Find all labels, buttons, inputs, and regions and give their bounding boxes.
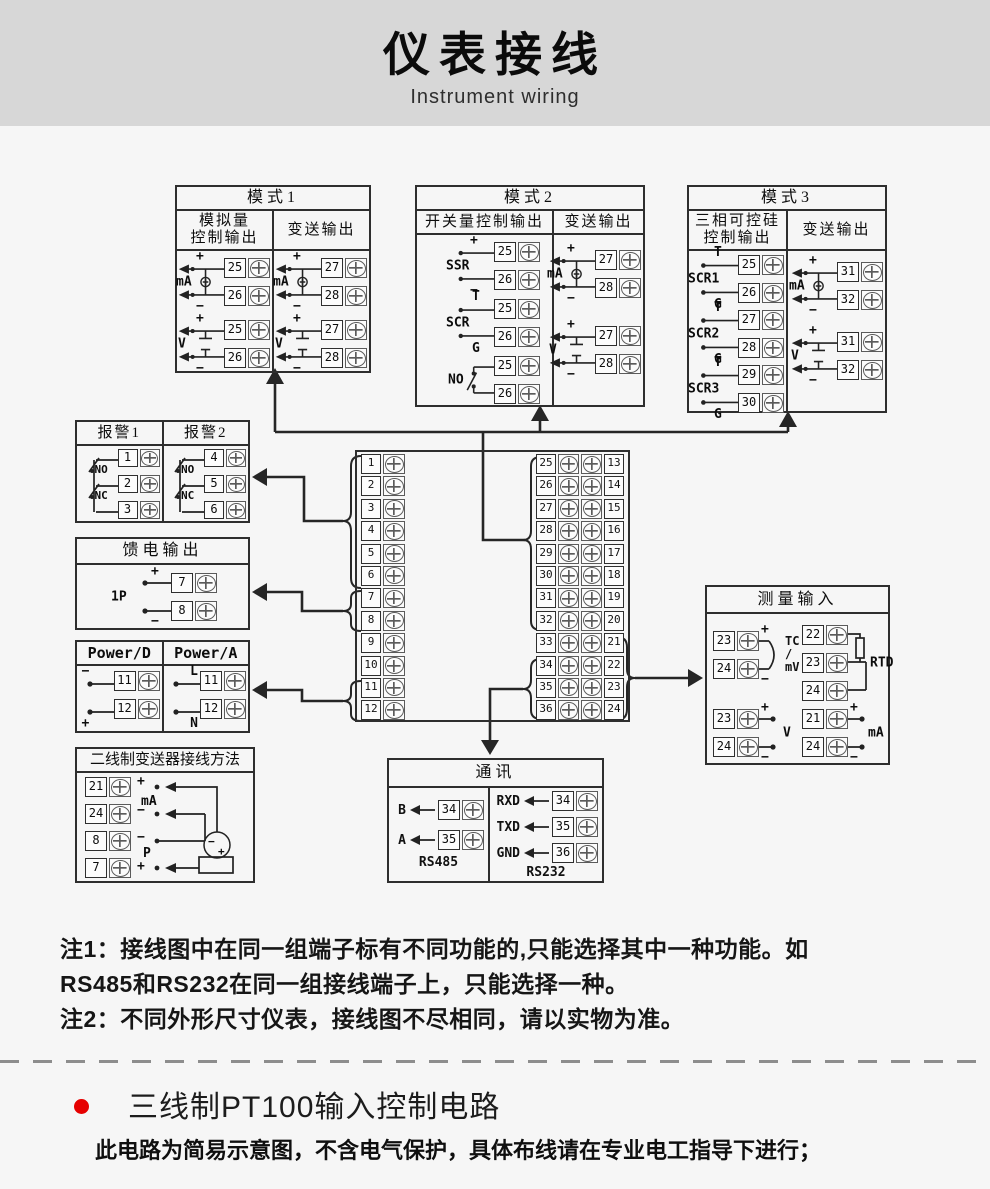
terminal-screw-icon xyxy=(826,681,848,701)
terminal-screw-icon xyxy=(737,737,759,757)
terminal-row: 6 xyxy=(361,566,405,586)
terminal: 6 xyxy=(204,501,246,519)
terminal: 34 xyxy=(552,791,598,811)
terminal: 25 xyxy=(494,299,540,319)
mode3-box: 模式3 三相可控硅控制输出 T xyxy=(687,185,887,413)
terminal-screw-icon xyxy=(383,678,405,698)
terminal: 12 xyxy=(114,699,160,719)
comm-signal-row: TXD 35 xyxy=(490,817,598,837)
terminal-screw-icon xyxy=(383,611,405,631)
transmitter-minus: − xyxy=(208,836,215,848)
terminal-screw-icon xyxy=(762,338,784,358)
terminal-screw-icon xyxy=(195,573,217,593)
feed-output-box: 馈电输出 + − 1P 7 8 xyxy=(75,537,250,630)
mode2-relay-no-group: NO 25 26 xyxy=(446,353,540,407)
terminal: 32 xyxy=(837,360,883,380)
two-wire-title: 二线制变送器接线方法 xyxy=(77,749,253,773)
terminal-screw-icon xyxy=(140,475,160,493)
terminal: 23 xyxy=(713,631,759,651)
central-left-column: 1 2 3 4 5 6 xyxy=(361,454,405,720)
terminal-screw-icon xyxy=(345,320,367,340)
terminal: 35 xyxy=(438,830,484,850)
v-input-group: 23 24 + − V xyxy=(713,706,801,760)
terminal-screw-icon xyxy=(558,588,579,608)
mode2-switch-column: 开关量控制输出 + − SSR 25 xyxy=(417,211,552,405)
terminal-screw-icon xyxy=(576,791,598,811)
terminal-screw-icon xyxy=(576,817,598,837)
terminal-screw-icon xyxy=(737,659,759,679)
terminal-screw-icon xyxy=(861,290,883,310)
mode3-scr-column: 三相可控硅控制输出 T G xyxy=(689,211,786,411)
terminal-row: 2513 xyxy=(536,454,624,474)
arrow-left-icon xyxy=(409,800,435,820)
terminal-screw-icon xyxy=(224,671,246,691)
terminal: 26 xyxy=(224,348,270,368)
measurement-input-title: 测量输入 xyxy=(707,587,888,614)
terminal-screw-icon xyxy=(558,499,579,519)
terminal: 31 xyxy=(837,262,883,282)
terminal-row: 2917 xyxy=(536,544,624,564)
terminal-screw-icon xyxy=(581,678,602,698)
terminal-row: 12 xyxy=(361,700,405,720)
dashed-divider xyxy=(0,1060,990,1063)
mode1-col1-header: 模拟量控制输出 xyxy=(177,211,272,251)
tc-mv-input-group: 23 24 + − TC / mV xyxy=(713,628,811,682)
terminal-row: 3422 xyxy=(536,656,624,676)
terminal-row: 2 xyxy=(361,476,405,496)
terminal-screw-icon xyxy=(826,709,848,729)
terminal: 24 xyxy=(802,737,848,757)
mode1-analog-column: 模拟量控制输出 + − mA xyxy=(177,211,272,371)
terminal-screw-icon xyxy=(109,831,131,851)
terminal-screw-icon xyxy=(581,454,602,474)
terminal-screw-icon xyxy=(762,393,784,413)
alarm1-title: 报警1 xyxy=(97,425,141,442)
terminal: 31 xyxy=(837,332,883,352)
communication-box: 通讯 B 34 A xyxy=(387,758,604,883)
terminal-row: 3220 xyxy=(536,611,624,631)
terminal-screw-icon xyxy=(619,326,641,346)
terminal-screw-icon xyxy=(581,588,602,608)
power-d-title: Power/D xyxy=(88,645,151,662)
terminal: 29 xyxy=(738,365,784,385)
rtd-input-group: 22 23 24 RTD xyxy=(802,622,892,704)
terminal-screw-icon xyxy=(226,501,246,519)
terminal: 4 xyxy=(204,449,246,467)
terminal: 27 xyxy=(595,250,641,270)
terminal-screw-icon xyxy=(383,588,405,608)
terminal-row: 2614 xyxy=(536,476,624,496)
terminal-screw-icon xyxy=(248,348,270,368)
terminal-screw-icon xyxy=(558,656,579,676)
terminal-screw-icon xyxy=(762,283,784,303)
terminal: 8 xyxy=(85,831,131,851)
terminal: 34 xyxy=(438,800,484,820)
terminal-screw-icon xyxy=(518,270,540,290)
terminal-screw-icon xyxy=(383,476,405,496)
terminal-screw-icon xyxy=(558,476,579,496)
terminal: 11 xyxy=(114,671,160,691)
terminal-row: 3321 xyxy=(536,633,624,653)
terminal: 7 xyxy=(171,573,217,593)
terminal-screw-icon xyxy=(558,566,579,586)
terminal-screw-icon xyxy=(581,499,602,519)
mode1-title: 模式1 xyxy=(177,187,369,211)
terminal-screw-icon xyxy=(558,633,579,653)
terminal-screw-icon xyxy=(383,499,405,519)
tc-mv-label: TC / mV xyxy=(785,635,799,674)
terminal: 26 xyxy=(494,384,540,404)
terminal-row: 4 xyxy=(361,521,405,541)
mode1-col2-header: 变送输出 xyxy=(287,222,355,239)
terminal-screw-icon xyxy=(558,700,579,720)
terminal-screw-icon xyxy=(383,521,405,541)
arrow-left-icon xyxy=(523,843,549,863)
terminal-screw-icon xyxy=(345,258,367,278)
terminal-screw-icon xyxy=(195,601,217,621)
rtd-resistor-icon xyxy=(848,622,870,704)
mode1-box: 模式1 模拟量控制输出 + xyxy=(175,185,371,373)
terminal: 7 xyxy=(85,858,131,878)
terminal-screw-icon xyxy=(109,858,131,878)
note-line-2: RS485和RS232在同一组接线端子上，只能选择一种。 xyxy=(60,967,950,1002)
terminal-screw-icon xyxy=(383,656,405,676)
terminal-row: 9 xyxy=(361,633,405,653)
terminal-screw-icon xyxy=(826,653,848,673)
terminal-screw-icon xyxy=(581,544,602,564)
terminal-screw-icon xyxy=(737,709,759,729)
terminal-screw-icon xyxy=(558,544,579,564)
terminal: 23 xyxy=(802,653,848,673)
terminal-screw-icon xyxy=(558,454,579,474)
rs485-label: RS485 xyxy=(389,855,488,870)
mode1-v-output-group: + − V 25 26 xyxy=(176,317,270,371)
mode1-ma-output-group: + − mA 25 26 xyxy=(176,255,270,309)
terminal-screw-icon xyxy=(762,310,784,330)
rs232-label: RS232 xyxy=(490,865,602,880)
mode2-scr-group: T G SCR 25 26 xyxy=(446,296,540,350)
instrument-wiring-page: 仪表接线 Instrument wiring 模式1 模拟量控制输出 xyxy=(0,0,990,1189)
central-right-column: 2513 2614 2715 2816 2917 xyxy=(536,454,624,720)
mode2-box: 模式2 开关量控制输出 + − SSR xyxy=(415,185,645,407)
feed-output-title: 馈电输出 xyxy=(77,539,248,565)
mode1-ma-retransmit-group: + − mA 27 28 xyxy=(273,255,367,309)
terminal-row: 7 xyxy=(361,588,405,608)
terminal-screw-icon xyxy=(138,671,160,691)
terminal: 21 xyxy=(85,777,131,797)
terminal: 28 xyxy=(595,278,641,298)
terminal-screw-icon xyxy=(248,258,270,278)
terminal-screw-icon xyxy=(109,804,131,824)
terminal-screw-icon xyxy=(518,242,540,262)
terminal: 30 xyxy=(738,393,784,413)
terminal-row: 2715 xyxy=(536,499,624,519)
terminal-screw-icon xyxy=(462,830,484,850)
terminal-screw-icon xyxy=(619,354,641,374)
terminal-screw-icon xyxy=(581,700,602,720)
terminal-screw-icon xyxy=(619,250,641,270)
terminal-screw-icon xyxy=(140,501,160,519)
terminal-row: 2816 xyxy=(536,521,624,541)
comm-signal-row: B 34 xyxy=(392,800,484,820)
terminal: 24 xyxy=(713,659,759,679)
mode2-col1-header: 开关量控制输出 xyxy=(425,214,544,231)
terminal: 8 xyxy=(171,601,217,621)
terminal: 28 xyxy=(595,354,641,374)
terminal: 26 xyxy=(494,270,540,290)
v-label: V xyxy=(783,726,791,741)
terminal-screw-icon xyxy=(518,327,540,347)
mode3-v-retransmit-group: + − V 31 32 xyxy=(789,329,883,383)
terminal: 2 xyxy=(118,475,160,493)
terminal-screw-icon xyxy=(462,800,484,820)
terminal: 25 xyxy=(494,356,540,376)
terminal-screw-icon xyxy=(558,678,579,698)
terminal: 21 xyxy=(802,709,848,729)
transmitter-wiring-icon xyxy=(153,773,257,883)
terminal-row: 3 xyxy=(361,499,405,519)
terminal-screw-icon xyxy=(109,777,131,797)
alarm-contact-icon xyxy=(86,449,118,523)
terminal-row: 3523 xyxy=(536,678,624,698)
terminal-row: 11 xyxy=(361,678,405,698)
mode2-v-retransmit-group: + − V 27 28 xyxy=(547,323,641,377)
terminal: 26 xyxy=(494,327,540,347)
terminal: 26 xyxy=(224,286,270,306)
arrow-left-icon xyxy=(409,830,435,850)
terminal-screw-icon xyxy=(581,611,602,631)
terminal-screw-icon xyxy=(861,360,883,380)
mode1-v-retransmit-group: + − V 27 28 xyxy=(273,317,367,371)
terminal-screw-icon xyxy=(861,262,883,282)
terminal-screw-icon xyxy=(383,544,405,564)
terminal-screw-icon xyxy=(581,633,602,653)
terminal: 23 xyxy=(713,709,759,729)
mode3-ma-retransmit-group: + − mA 31 32 xyxy=(789,259,883,313)
terminal-screw-icon xyxy=(581,656,602,676)
terminal: 5 xyxy=(204,475,246,493)
terminal: 12 xyxy=(200,699,246,719)
mode3-scr-group: T G SCR2 27 28 xyxy=(688,307,784,361)
terminal: 28 xyxy=(738,338,784,358)
terminal-row: 3018 xyxy=(536,566,624,586)
mode2-col2-header: 变送输出 xyxy=(564,214,632,231)
comm-signal-row: GND 36 xyxy=(490,843,598,863)
arrow-left-icon xyxy=(523,817,549,837)
alarm1-column: 报警1 NO NC 1 2 xyxy=(77,422,162,521)
pt100-section-subheading: 此电路为简易示意图，不含电气保护，具体布线请在专业电工指导下进行； xyxy=(95,1133,821,1165)
terminal-screw-icon xyxy=(581,476,602,496)
alarm-box: 报警1 NO NC 1 2 xyxy=(75,420,250,523)
mode1-retransmit-column: 变送输出 + − mA xyxy=(272,211,369,371)
terminal-screw-icon xyxy=(558,521,579,541)
terminal-screw-icon xyxy=(248,286,270,306)
rs485-column: B 34 A 35 xyxy=(389,788,488,881)
terminal: 1 xyxy=(118,449,160,467)
terminal-screw-icon xyxy=(558,611,579,631)
terminal-screw-icon xyxy=(345,286,367,306)
terminal-screw-icon xyxy=(826,625,848,645)
terminal: 22 xyxy=(802,625,848,645)
central-terminal-block: 1 2 3 4 5 6 xyxy=(355,450,630,722)
power-d-column: Power/D − + 11 12 xyxy=(77,642,162,731)
terminal: 25 xyxy=(494,242,540,262)
terminal-screw-icon xyxy=(518,384,540,404)
terminal-screw-icon xyxy=(248,320,270,340)
mode3-scr-group: T G SCR1 25 26 xyxy=(688,252,784,306)
terminal-screw-icon xyxy=(224,699,246,719)
terminal: 32 xyxy=(837,290,883,310)
power-box: Power/D − + 11 12 xyxy=(75,640,250,733)
terminal-screw-icon xyxy=(518,356,540,376)
measurement-input-box: 测量输入 23 24 + − TC / mV xyxy=(705,585,890,765)
transmitter-plus: + xyxy=(218,846,225,858)
terminal: 24 xyxy=(713,737,759,757)
power-a-column: Power/A L N 11 12 xyxy=(162,642,249,731)
terminal: 28 xyxy=(321,286,367,306)
wiring-notes: 注1：接线图中在同一组端子标有不同功能的,只能选择其中一种功能。如 RS485和… xyxy=(60,932,950,1037)
communication-title: 通讯 xyxy=(389,760,602,788)
terminal-screw-icon xyxy=(861,332,883,352)
terminal-screw-icon xyxy=(581,566,602,586)
terminal: 35 xyxy=(552,817,598,837)
terminal: 25 xyxy=(224,320,270,340)
pt100-section-heading: 三线制PT100输入控制电路 xyxy=(128,1082,500,1126)
comm-signal-row: RXD 34 xyxy=(490,791,598,811)
note-line-3: 注2：不同外形尺寸仪表，接线图不尽相同，请以实物为准。 xyxy=(60,1002,950,1037)
terminal: 27 xyxy=(321,258,367,278)
terminal-screw-icon xyxy=(383,454,405,474)
terminal: 27 xyxy=(321,320,367,340)
rs232-column: RXD 34 TXD 35 xyxy=(488,788,602,881)
two-wire-transmitter-box: 二线制变送器接线方法 21 24 8 7 + mA − − P + xyxy=(75,747,255,883)
terminal: 25 xyxy=(738,255,784,275)
red-bullet-icon xyxy=(74,1099,89,1114)
terminal-screw-icon xyxy=(737,631,759,651)
terminal: 24 xyxy=(802,681,848,701)
terminal-screw-icon xyxy=(576,843,598,863)
terminal-screw-icon xyxy=(138,699,160,719)
terminal-screw-icon xyxy=(581,521,602,541)
mode2-title: 模式2 xyxy=(417,187,643,211)
terminal-screw-icon xyxy=(383,633,405,653)
alarm2-title: 报警2 xyxy=(184,425,228,442)
alarm-contact-icon xyxy=(172,449,204,523)
power-a-title: Power/A xyxy=(174,645,237,662)
terminal-screw-icon xyxy=(226,475,246,493)
mode2-ma-retransmit-group: + − mA 27 28 xyxy=(547,247,641,301)
terminal: 11 xyxy=(200,671,246,691)
terminal-screw-icon xyxy=(762,255,784,275)
ma-label: mA xyxy=(868,726,884,741)
mode3-col2-header: 变送输出 xyxy=(802,222,870,239)
terminal-screw-icon xyxy=(826,737,848,757)
terminal-screw-icon xyxy=(226,449,246,467)
terminal-row: 5 xyxy=(361,544,405,564)
terminal-screw-icon xyxy=(518,299,540,319)
terminal-row: 1 xyxy=(361,454,405,474)
terminal-row: 3624 xyxy=(536,700,624,720)
terminal: 26 xyxy=(738,283,784,303)
terminal-screw-icon xyxy=(619,278,641,298)
mode3-retransmit-column: 变送输出 + − mA xyxy=(786,211,885,411)
ma-input-group: 21 24 + − mA xyxy=(802,706,892,760)
terminal-screw-icon xyxy=(140,449,160,467)
feed-output-group: + − 1P 7 8 xyxy=(111,570,217,624)
terminal-row: 3119 xyxy=(536,588,624,608)
terminal-row: 10 xyxy=(361,656,405,676)
terminal: 36 xyxy=(552,843,598,863)
terminal-row: 8 xyxy=(361,611,405,631)
terminal: 25 xyxy=(224,258,270,278)
terminal-screw-icon xyxy=(345,348,367,368)
terminal: 3 xyxy=(118,501,160,519)
alarm2-column: 报警2 NO NC 4 5 xyxy=(162,422,249,521)
terminal: 28 xyxy=(321,348,367,368)
comm-signal-row: A 35 xyxy=(392,830,484,850)
terminal: 27 xyxy=(595,326,641,346)
note-line-1: 注1：接线图中在同一组端子标有不同功能的,只能选择其中一种功能。如 xyxy=(60,932,950,967)
mode2-ssr-group: + − SSR 25 26 xyxy=(446,239,540,293)
arrow-left-icon xyxy=(523,791,549,811)
mode2-retransmit-column: 变送输出 + − mA xyxy=(552,211,643,405)
rtd-label: RTD xyxy=(870,656,893,671)
terminal-screw-icon xyxy=(762,365,784,385)
mode3-title: 模式3 xyxy=(689,187,885,211)
mode3-scr-group: T G SCR3 29 30 xyxy=(688,362,784,416)
terminal: 24 xyxy=(85,804,131,824)
terminal: 27 xyxy=(738,310,784,330)
terminal-screw-icon xyxy=(383,566,405,586)
terminal-screw-icon xyxy=(383,700,405,720)
